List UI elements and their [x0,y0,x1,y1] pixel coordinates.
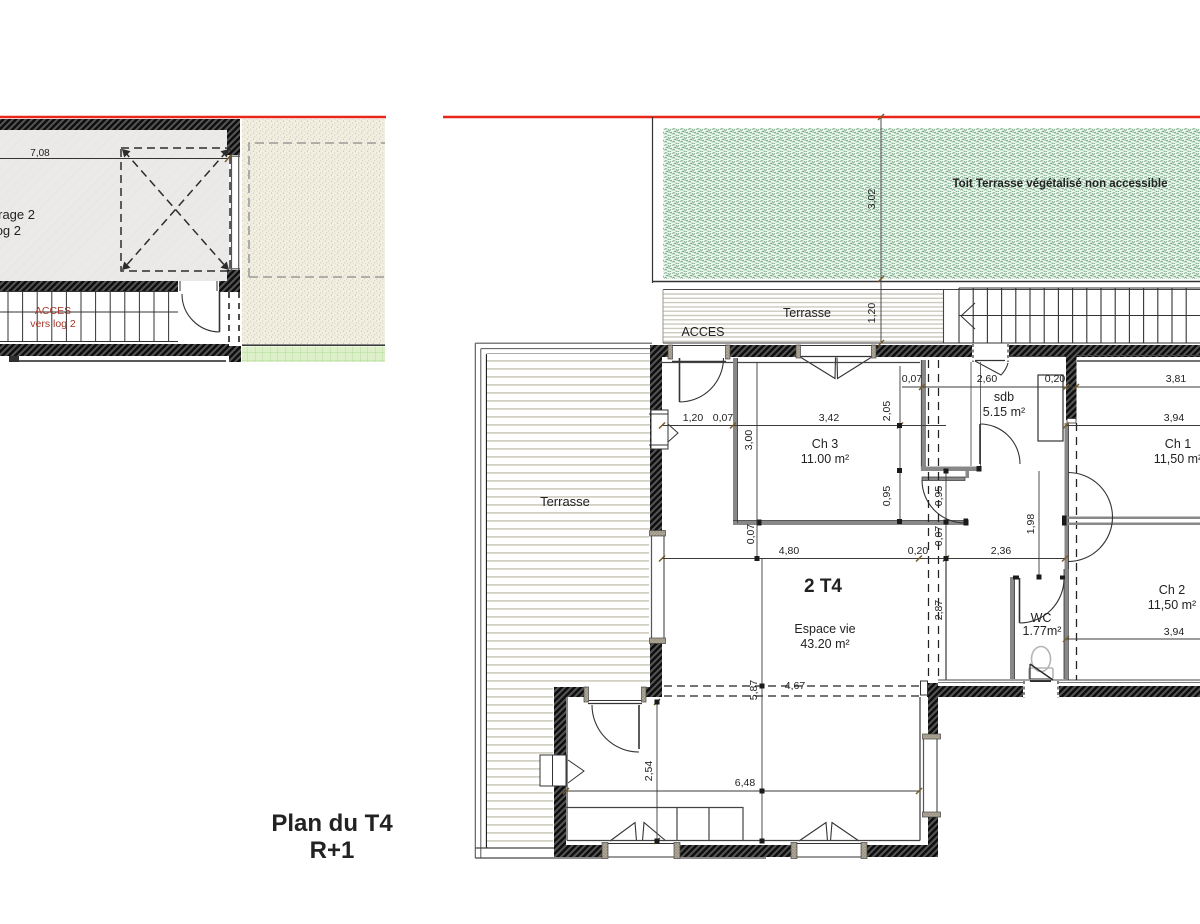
svg-text:4,80: 4,80 [779,545,800,557]
svg-text:Terrasse: Terrasse [540,494,590,509]
svg-text:Ch 3: Ch 3 [812,437,838,451]
svg-text:11,50 m²: 11,50 m² [1154,452,1200,466]
svg-text:4,67: 4,67 [785,680,806,692]
svg-text:11,50 m²: 11,50 m² [1148,598,1196,612]
svg-text:ACCES: ACCES [681,325,724,339]
svg-text:3,94: 3,94 [1164,412,1185,424]
svg-text:0,95: 0,95 [933,486,945,507]
svg-text:Ch 2: Ch 2 [1159,583,1185,597]
svg-text:1,98: 1,98 [1025,514,1037,535]
svg-text:3,42: 3,42 [819,412,840,424]
svg-text:0,20: 0,20 [1045,373,1066,385]
svg-text:0,20: 0,20 [908,545,929,557]
svg-text:3,94: 3,94 [1164,626,1185,638]
svg-text:3,02: 3,02 [866,189,878,210]
svg-text:Plan du T4: Plan du T4 [271,810,393,837]
svg-text:0,95: 0,95 [881,486,893,507]
svg-text:ACCES: ACCES [35,305,71,317]
svg-text:Espace vie: Espace vie [794,622,855,636]
svg-text:Ch 1: Ch 1 [1165,437,1191,451]
svg-text:2,54: 2,54 [643,761,655,782]
svg-text:Toit Terrasse végétalisé non a: Toit Terrasse végétalisé non accessible [953,178,1168,190]
svg-text:2,87: 2,87 [933,600,945,621]
svg-text:5,87: 5,87 [748,680,760,701]
svg-text:3,00: 3,00 [743,430,755,451]
svg-text:og 2: og 2 [0,223,21,238]
svg-text:1,20: 1,20 [683,412,704,424]
svg-text:0,07: 0,07 [902,373,923,385]
svg-text:2,60: 2,60 [977,373,998,385]
svg-text:43.20 m²: 43.20 m² [800,637,849,651]
svg-text:vers log 2: vers log 2 [30,318,76,330]
svg-text:2,36: 2,36 [991,545,1012,557]
svg-text:0,07: 0,07 [713,412,734,424]
svg-text:2,05: 2,05 [881,401,893,422]
svg-text:6,48: 6,48 [735,777,756,789]
svg-text:3,81: 3,81 [1166,373,1187,385]
svg-text:0,07: 0,07 [745,524,757,545]
svg-text:5.15 m²: 5.15 m² [983,405,1025,419]
svg-text:1.77m²: 1.77m² [1023,624,1062,638]
svg-text:11.00 m²: 11.00 m² [801,452,849,466]
svg-text:0,07: 0,07 [933,526,945,547]
svg-text:1,20: 1,20 [866,303,878,324]
svg-text:sdb: sdb [994,390,1014,404]
svg-text:7,08: 7,08 [30,148,50,159]
svg-text:R+1: R+1 [310,837,355,864]
svg-text:WC: WC [1031,611,1052,625]
svg-text:2 T4: 2 T4 [804,576,842,597]
svg-text:Terrasse: Terrasse [783,306,831,320]
svg-text:rage 2: rage 2 [0,207,35,222]
